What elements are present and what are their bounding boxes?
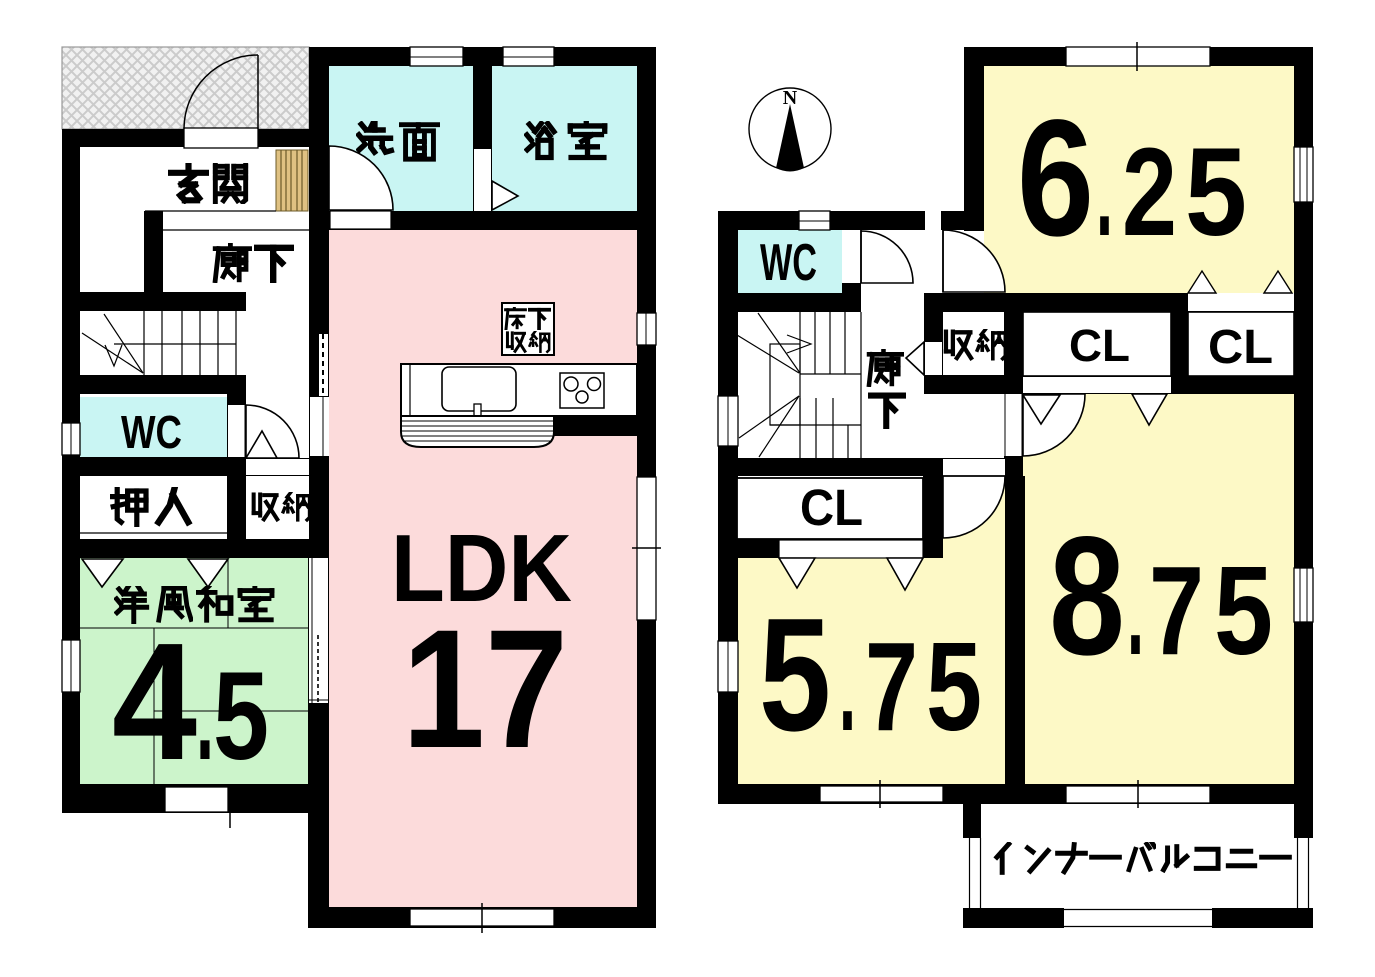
svg-text:5: 5 [1185,123,1247,262]
svg-text:.: . [1096,123,1113,262]
svg-text:.: . [839,616,856,757]
svg-text:WC: WC [121,406,182,458]
svg-text:5: 5 [759,585,831,765]
svg-text:2: 2 [1122,123,1177,262]
svg-text:.: . [1127,540,1144,681]
svg-text:7: 7 [865,616,918,757]
svg-text:CL: CL [1208,321,1273,374]
svg-text:4: 4 [112,609,197,795]
svg-text:6: 6 [1017,86,1094,271]
svg-text:5: 5 [926,616,982,757]
svg-text:7: 7 [1149,540,1204,681]
svg-text:8: 8 [1049,501,1125,690]
svg-text:CL: CL [1069,320,1130,371]
svg-text:CL: CL [800,479,863,536]
svg-text:17: 17 [402,594,568,783]
svg-text:.: . [196,647,214,786]
svg-text:N: N [783,87,798,109]
svg-text:WC: WC [760,234,817,292]
svg-text:5: 5 [213,647,269,786]
svg-text:5: 5 [1214,540,1273,681]
